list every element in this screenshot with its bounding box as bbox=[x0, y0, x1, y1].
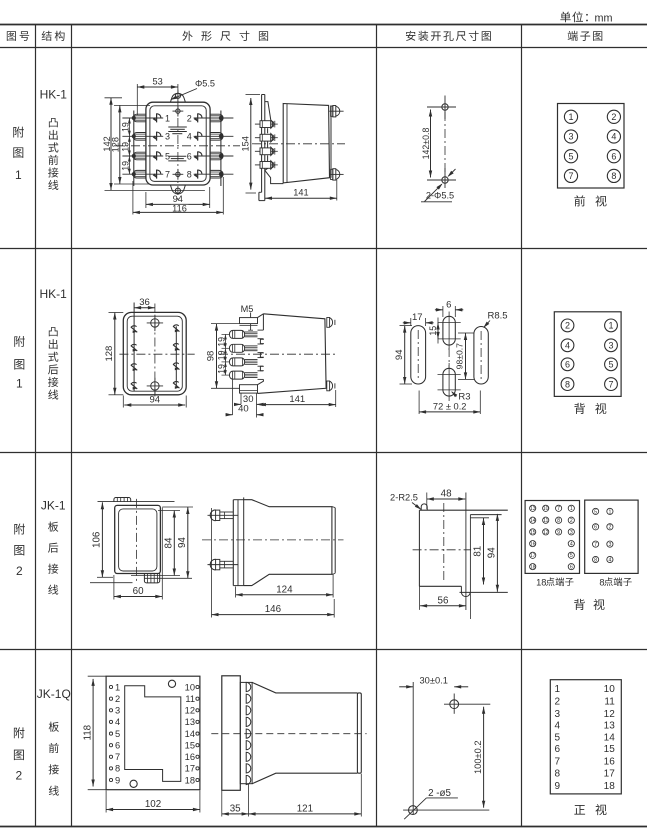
svg-text:M5: M5 bbox=[241, 304, 254, 314]
svg-text:35: 35 bbox=[230, 803, 241, 814]
svg-text:JK-1Q: JK-1Q bbox=[37, 687, 71, 701]
svg-text:98±0.7: 98±0.7 bbox=[455, 343, 465, 369]
svg-text:146: 146 bbox=[265, 604, 282, 615]
svg-text:10: 10 bbox=[604, 684, 616, 695]
svg-text:12: 12 bbox=[604, 709, 616, 720]
svg-text:7: 7 bbox=[594, 542, 597, 548]
svg-text:1: 1 bbox=[165, 113, 170, 123]
svg-text:2: 2 bbox=[555, 697, 561, 708]
svg-text:11: 11 bbox=[604, 697, 615, 708]
svg-text:19: 19 bbox=[121, 161, 131, 171]
svg-text:8: 8 bbox=[557, 518, 560, 524]
svg-text:72 ± 0.2: 72 ± 0.2 bbox=[433, 401, 467, 411]
svg-text:16: 16 bbox=[604, 756, 616, 767]
svg-text:7: 7 bbox=[165, 170, 170, 180]
svg-text:7: 7 bbox=[568, 171, 573, 181]
svg-text:141: 141 bbox=[293, 188, 308, 198]
svg-text:17: 17 bbox=[604, 769, 616, 780]
svg-text:11: 11 bbox=[185, 694, 195, 704]
svg-text:9: 9 bbox=[115, 775, 120, 785]
svg-text:7: 7 bbox=[557, 506, 560, 512]
svg-text:13: 13 bbox=[530, 506, 536, 512]
svg-text:1: 1 bbox=[570, 506, 573, 512]
svg-text:5: 5 bbox=[608, 360, 613, 370]
svg-text:124: 124 bbox=[276, 584, 293, 595]
svg-text:13: 13 bbox=[604, 720, 616, 731]
svg-text:6: 6 bbox=[446, 299, 451, 310]
svg-text:6: 6 bbox=[570, 565, 573, 571]
svg-text:4: 4 bbox=[565, 341, 570, 351]
svg-text:94: 94 bbox=[150, 395, 161, 406]
svg-text:3: 3 bbox=[555, 709, 561, 720]
svg-text:102: 102 bbox=[145, 799, 161, 810]
svg-text:4: 4 bbox=[555, 720, 561, 731]
svg-text:98: 98 bbox=[206, 351, 217, 362]
svg-text:5: 5 bbox=[555, 733, 561, 744]
svg-text:15: 15 bbox=[530, 530, 536, 536]
svg-text:4: 4 bbox=[187, 132, 192, 142]
svg-text:3: 3 bbox=[568, 132, 573, 142]
svg-text:17: 17 bbox=[412, 312, 423, 323]
svg-text:19: 19 bbox=[121, 122, 131, 132]
svg-text:2-R2.5: 2-R2.5 bbox=[390, 493, 418, 503]
svg-text:18: 18 bbox=[604, 781, 616, 792]
svg-text:1: 1 bbox=[16, 377, 23, 391]
svg-text:116: 116 bbox=[172, 203, 187, 213]
svg-text:6: 6 bbox=[611, 151, 616, 161]
svg-text:18: 18 bbox=[536, 577, 546, 587]
svg-text:5: 5 bbox=[568, 151, 573, 161]
svg-text:6: 6 bbox=[594, 525, 597, 531]
svg-text:2: 2 bbox=[115, 694, 120, 704]
svg-text:5: 5 bbox=[570, 553, 573, 559]
svg-text:2-Φ5.5: 2-Φ5.5 bbox=[426, 191, 454, 201]
svg-text:30±0.1: 30±0.1 bbox=[420, 676, 448, 686]
svg-text:8: 8 bbox=[187, 170, 192, 180]
svg-text:15: 15 bbox=[185, 741, 195, 751]
svg-text:HK-1: HK-1 bbox=[40, 88, 68, 102]
svg-text:19: 19 bbox=[217, 364, 227, 374]
svg-text:10: 10 bbox=[543, 506, 549, 512]
svg-text:1: 1 bbox=[608, 321, 613, 331]
svg-text:1: 1 bbox=[608, 509, 611, 515]
svg-text:4: 4 bbox=[570, 542, 573, 548]
svg-text:118: 118 bbox=[82, 724, 93, 740]
svg-text:16: 16 bbox=[530, 542, 536, 548]
svg-text:9: 9 bbox=[555, 781, 561, 792]
svg-text:3: 3 bbox=[115, 706, 120, 716]
svg-text:3: 3 bbox=[608, 542, 611, 548]
svg-text:6: 6 bbox=[187, 151, 192, 161]
svg-text:17: 17 bbox=[185, 764, 195, 774]
svg-text:142±0.8: 142±0.8 bbox=[421, 128, 431, 160]
svg-text:15: 15 bbox=[428, 326, 438, 336]
svg-text:2: 2 bbox=[565, 321, 570, 331]
svg-text:Φ5.5: Φ5.5 bbox=[195, 79, 215, 89]
svg-text:18: 18 bbox=[530, 565, 536, 571]
svg-text:9: 9 bbox=[557, 530, 560, 536]
svg-text:94: 94 bbox=[487, 547, 498, 558]
svg-text:4: 4 bbox=[608, 557, 611, 563]
svg-text:141: 141 bbox=[289, 394, 305, 405]
svg-text:2: 2 bbox=[611, 112, 616, 122]
svg-text:15: 15 bbox=[604, 744, 616, 755]
svg-text:16: 16 bbox=[185, 752, 195, 762]
svg-text:2: 2 bbox=[16, 769, 23, 783]
svg-text:81: 81 bbox=[473, 546, 484, 557]
svg-text:8: 8 bbox=[555, 769, 561, 780]
svg-text:100±0.2: 100±0.2 bbox=[473, 740, 483, 774]
svg-text:7: 7 bbox=[115, 752, 120, 762]
svg-text:1: 1 bbox=[555, 684, 561, 695]
svg-text:8: 8 bbox=[611, 171, 616, 181]
svg-text:19: 19 bbox=[217, 337, 227, 347]
svg-text:94: 94 bbox=[173, 194, 183, 204]
svg-text:4: 4 bbox=[115, 717, 120, 727]
svg-text:7: 7 bbox=[555, 756, 561, 767]
svg-text:14: 14 bbox=[604, 733, 616, 744]
svg-text:7: 7 bbox=[608, 379, 613, 389]
svg-text:3: 3 bbox=[570, 530, 573, 536]
svg-text:106: 106 bbox=[92, 531, 103, 548]
svg-text:mm: mm bbox=[595, 12, 613, 24]
svg-text:2 -ø5: 2 -ø5 bbox=[428, 788, 451, 799]
svg-text:128: 128 bbox=[111, 137, 121, 152]
svg-text:3: 3 bbox=[608, 341, 613, 351]
svg-text:14: 14 bbox=[185, 729, 195, 739]
svg-text:5: 5 bbox=[594, 509, 597, 515]
svg-text:8: 8 bbox=[565, 379, 570, 389]
svg-text:40: 40 bbox=[238, 404, 249, 415]
svg-text:2: 2 bbox=[608, 525, 611, 531]
svg-text:1: 1 bbox=[115, 682, 120, 692]
svg-text:2: 2 bbox=[570, 518, 573, 524]
svg-text:4: 4 bbox=[611, 132, 616, 142]
svg-text:3: 3 bbox=[165, 132, 170, 142]
svg-text:121: 121 bbox=[297, 803, 313, 814]
svg-text:10: 10 bbox=[185, 682, 195, 692]
svg-text:8: 8 bbox=[599, 577, 604, 587]
svg-text:1: 1 bbox=[15, 168, 22, 182]
svg-text:48: 48 bbox=[441, 489, 452, 500]
svg-text:JK-1: JK-1 bbox=[41, 498, 66, 512]
svg-text:8: 8 bbox=[115, 764, 120, 774]
svg-text:18: 18 bbox=[185, 775, 195, 785]
svg-text:8: 8 bbox=[594, 557, 597, 563]
svg-text:5: 5 bbox=[115, 729, 120, 739]
svg-text:6: 6 bbox=[555, 744, 561, 755]
svg-text:94: 94 bbox=[177, 537, 188, 548]
svg-text:53: 53 bbox=[152, 77, 162, 87]
svg-text:19: 19 bbox=[121, 142, 131, 152]
svg-text:14: 14 bbox=[530, 518, 536, 524]
svg-text:6: 6 bbox=[115, 741, 120, 751]
svg-text:56: 56 bbox=[438, 595, 449, 606]
svg-text:128: 128 bbox=[104, 346, 115, 362]
svg-text:17: 17 bbox=[530, 553, 536, 559]
svg-text:R8.5: R8.5 bbox=[487, 311, 507, 322]
svg-text:12: 12 bbox=[543, 530, 549, 536]
svg-text:84: 84 bbox=[164, 537, 175, 548]
svg-text:60: 60 bbox=[133, 586, 144, 597]
svg-text:1: 1 bbox=[568, 112, 573, 122]
svg-text:2: 2 bbox=[16, 564, 23, 578]
svg-text:11: 11 bbox=[543, 518, 548, 524]
svg-text:154: 154 bbox=[241, 136, 251, 151]
svg-text:HK-1: HK-1 bbox=[40, 287, 68, 301]
svg-text:36: 36 bbox=[139, 297, 150, 308]
svg-text:6: 6 bbox=[565, 360, 570, 370]
svg-text:2: 2 bbox=[187, 113, 192, 123]
svg-text:13: 13 bbox=[185, 717, 195, 727]
svg-text:94: 94 bbox=[394, 350, 405, 361]
svg-text:12: 12 bbox=[185, 706, 195, 716]
svg-text:19: 19 bbox=[217, 350, 227, 360]
